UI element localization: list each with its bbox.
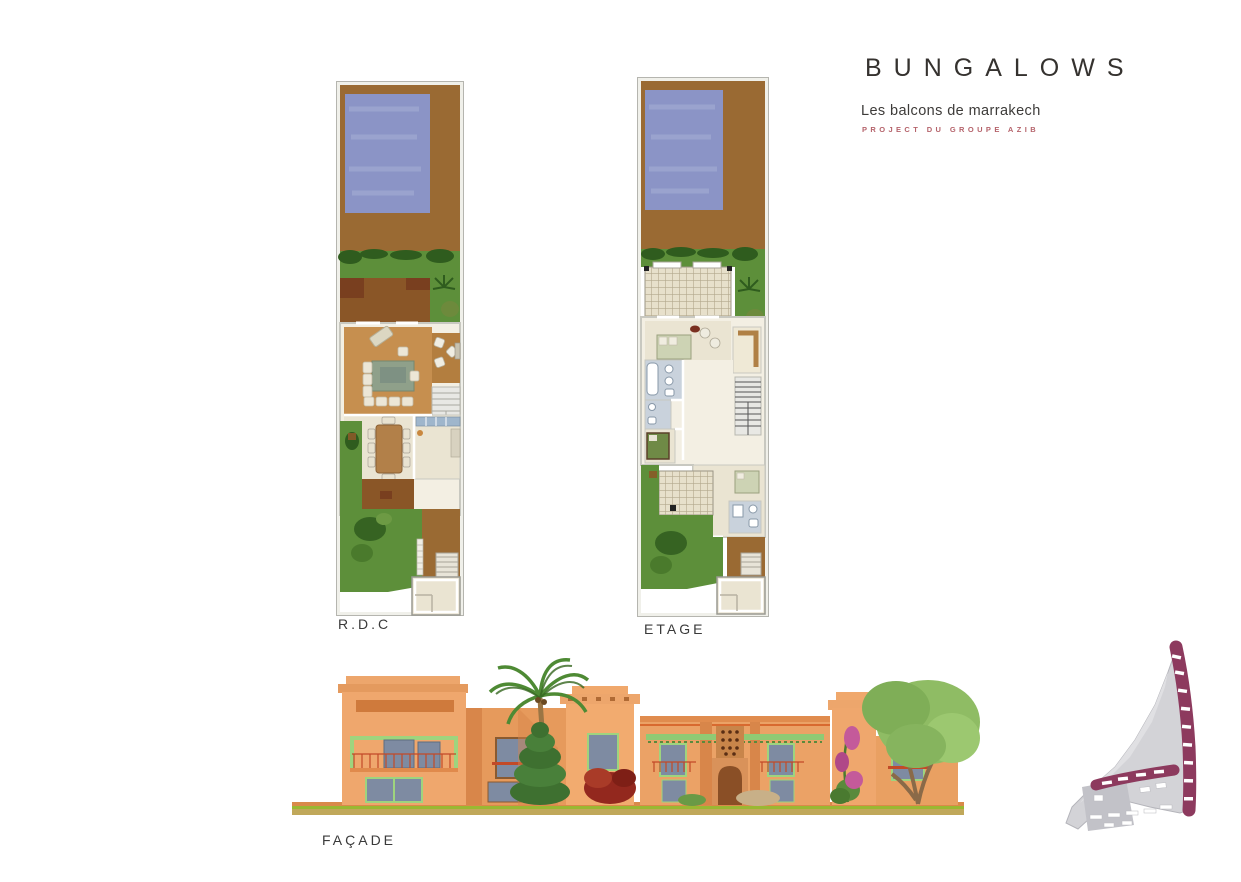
bathroom-small: [645, 400, 671, 429]
floor-plan-etage: [637, 77, 769, 617]
building-left: [338, 676, 468, 805]
facade-elevation: [288, 650, 980, 825]
page-title: BUNGALOWS: [865, 54, 1136, 83]
base-shrub: [678, 794, 706, 806]
pool-deck: [641, 81, 765, 249]
balcony: [733, 327, 761, 373]
pergola-lower: [659, 471, 713, 515]
entrance-room: [412, 577, 460, 615]
entry-steps: [741, 553, 761, 575]
decorative-panel: [716, 726, 744, 758]
project-subtitle: Les balcons de marrakech: [861, 103, 1041, 119]
entrance-room: [717, 577, 765, 614]
pool-deck: [340, 85, 460, 251]
hallway: [683, 360, 733, 460]
floor-plan-rdc: [336, 81, 464, 616]
base-shrub: [736, 790, 780, 806]
stairs-etage: [735, 377, 761, 435]
dining-table: [376, 425, 402, 473]
brochure-page: BUNGALOWS Les balcons de marrakech PROJE…: [0, 0, 1241, 882]
bedroom-2: [645, 429, 675, 463]
bathroom-3: [729, 501, 761, 533]
bathroom-main: [645, 360, 683, 400]
awning: [740, 734, 824, 740]
project-tagline: PROJECT DU GROUPE AZIB: [862, 125, 1039, 134]
building-main-right: [640, 716, 830, 806]
label-facade: FAÇADE: [322, 832, 396, 848]
entry-steps: [436, 553, 458, 577]
terrace-mid: [362, 479, 414, 509]
label-etage: ETAGE: [644, 621, 705, 637]
site-plan: [1060, 637, 1225, 844]
roof-terrace: [340, 278, 430, 323]
label-rdc: R.D.C: [338, 616, 391, 632]
pergola-upper: [644, 262, 732, 317]
site-outline: [1066, 644, 1193, 831]
kitchen: [414, 415, 460, 479]
red-bush: [584, 768, 636, 804]
